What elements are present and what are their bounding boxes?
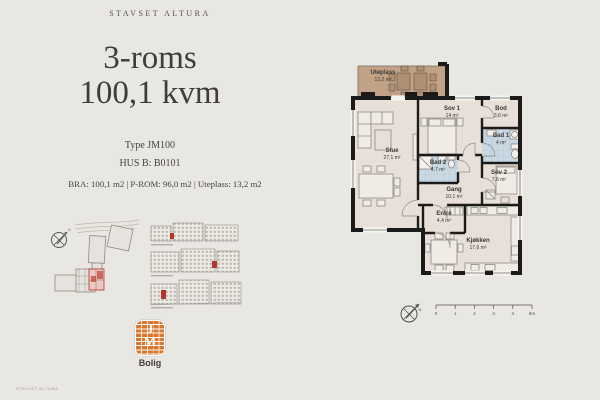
room-label-entre: Entré 4,4 m²: [436, 211, 451, 224]
room-label-sov2: Sov 2 7,6 m²: [491, 170, 507, 183]
room-label-gang: Gang 10,1 m²: [446, 187, 463, 200]
footer-note: STAVSET ALTURA: [16, 386, 58, 391]
site-highlight-unit: [89, 269, 104, 290]
site-plan-drawing: N: [45, 218, 245, 313]
floorplan-sheet: STAVSET ALTURA 3-roms 100,1 kvm Type JM1…: [0, 0, 600, 400]
scale-tick-label: 0: [435, 311, 438, 316]
scale-bar: 0 1 2 3 4 5m: [432, 300, 536, 318]
room-label-bad1: Bad 1 4 m²: [493, 133, 509, 146]
room-label-bod: Bod 3,6 m²: [494, 106, 508, 119]
room-label-kjokken: Kjøkken 17,6 m²: [466, 238, 489, 251]
scale-tick-label: 2: [473, 311, 476, 316]
title-size: 100,1 kvm: [0, 76, 300, 111]
scale-tick-label: 3: [492, 311, 495, 316]
elevation-caption: [151, 307, 173, 308]
room-label-bad2: Bad 2 4,7 m²: [430, 160, 446, 173]
project-brand: STAVSET ALTURA: [0, 9, 320, 18]
jm-logo-name: Bolig: [120, 358, 180, 368]
page-title: 3-roms 100,1 kvm: [0, 41, 300, 111]
site-compass-north-label: N: [68, 228, 71, 232]
elevation-caption: [151, 275, 173, 276]
elevation-caption: [151, 244, 173, 245]
site-compass-icon: [52, 232, 68, 248]
elevation-row-1: [151, 223, 238, 245]
plan-compass-north-label: N: [419, 307, 422, 312]
scale-tick-label: 1: [454, 311, 457, 316]
title-room-count: 3-roms: [0, 41, 300, 76]
jm-logo-letters: J M: [136, 323, 164, 348]
floorplan: Uteplass 13,2 m² Stue 27,1 m² Sov 1 14 m…: [335, 48, 535, 280]
scale-tick-label: 4: [512, 311, 515, 316]
room-label-sov1: Sov 1 14 m²: [444, 106, 460, 119]
scale-tick-label: 5m: [529, 311, 536, 316]
elevation-row-3: [150, 280, 242, 308]
plan-compass-icon: N: [398, 300, 424, 326]
unit-type: Type JM100: [0, 137, 300, 155]
unit-info: Type JM100 HUS B: B0101: [0, 137, 300, 173]
room-label-uteplass: Uteplass 13,2 m²: [370, 70, 395, 83]
jm-logo-icon: J M: [135, 320, 165, 356]
elevation-row-2: [151, 249, 239, 276]
room-label-stue: Stue 27,1 m²: [384, 148, 401, 161]
unit-house: HUS B: B0101: [0, 155, 300, 173]
area-specs: BRA: 100,1 m2 | P-ROM: 96,0 m2 | Uteplas…: [0, 179, 330, 189]
